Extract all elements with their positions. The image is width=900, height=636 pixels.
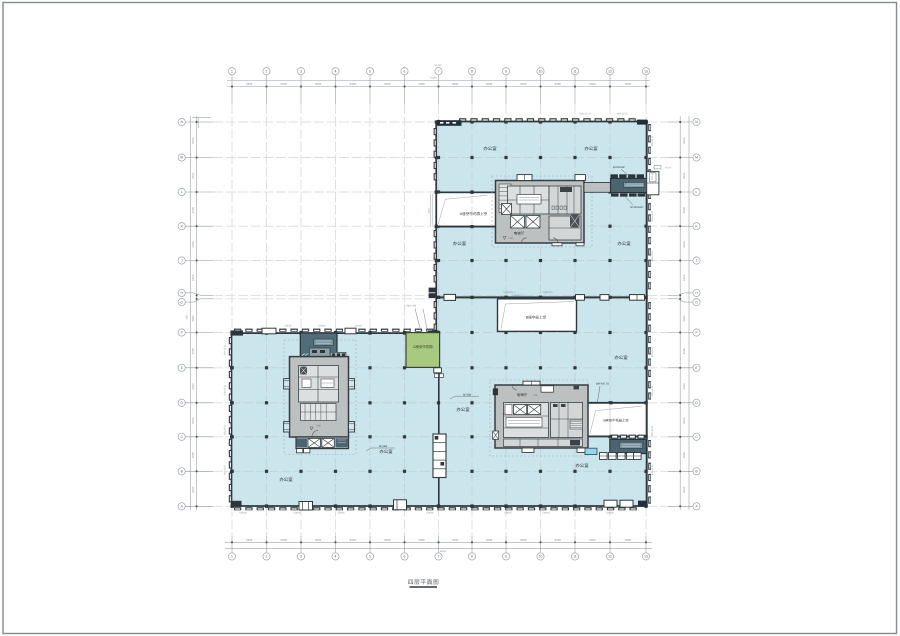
svg-text:K(J)#J: K(J)#J (430, 77, 437, 80)
svg-text:6600: 6600 (315, 538, 322, 542)
svg-text:B(7)B8: B(7)B8 (463, 393, 472, 396)
svg-text:6600: 6600 (682, 383, 686, 390)
svg-text:6600: 6600 (384, 82, 391, 86)
svg-text:6600: 6600 (246, 82, 253, 86)
svg-text:4: 4 (335, 555, 337, 559)
svg-text:12: 12 (608, 69, 612, 73)
svg-text:J: J (181, 259, 183, 263)
svg-text:办公室: 办公室 (614, 355, 628, 360)
svg-text:81900: 81900 (440, 550, 447, 553)
svg-text:办公室: 办公室 (575, 463, 589, 468)
svg-text:办公室: 办公室 (379, 449, 393, 454)
svg-text:6600: 6600 (625, 538, 632, 542)
svg-text:C8026: C8026 (426, 512, 434, 515)
svg-text:6600: 6600 (625, 82, 632, 86)
svg-text:6600: 6600 (682, 315, 686, 322)
svg-text:M2a (2-2): M2a (2-2) (651, 347, 654, 358)
svg-text:M2a (2-2): M2a (2-2) (224, 465, 227, 476)
svg-text:4500: 4500 (427, 208, 430, 214)
svg-text:K1J42: K1J42 (434, 64, 442, 67)
svg-text:C8026: C8026 (318, 324, 326, 327)
svg-text:M2a (2-2): M2a (2-2) (651, 251, 654, 262)
svg-text:G: G (695, 300, 698, 304)
svg-text:6600: 6600 (682, 348, 686, 355)
svg-text:C8026: C8026 (293, 512, 301, 515)
svg-text:B座中庭上空: B座中庭上空 (526, 315, 547, 320)
svg-text:办公室: 办公室 (617, 241, 631, 246)
svg-text:6600: 6600 (191, 486, 195, 493)
svg-text:L: L (181, 190, 183, 194)
svg-text:8: 8 (471, 69, 473, 73)
svg-text:6600: 6600 (281, 82, 288, 86)
svg-text:6600: 6600 (486, 538, 493, 542)
svg-text:4: 4 (335, 69, 337, 73)
svg-text:1: 1 (231, 69, 233, 73)
svg-text:3: 3 (300, 69, 302, 73)
svg-text:L: L (696, 190, 698, 194)
svg-text:6600: 6600 (682, 207, 686, 214)
svg-text:6600: 6600 (191, 207, 195, 214)
svg-text:M2a (2-2): M2a (2-2) (651, 465, 654, 476)
svg-text:6600: 6600 (682, 241, 686, 248)
svg-text:C8026: C8026 (284, 324, 292, 327)
svg-text:6600: 6600 (191, 417, 195, 424)
svg-text:C8026: C8026 (337, 512, 345, 515)
svg-text:6600: 6600 (191, 315, 195, 322)
svg-text:C座空中花园: C座空中花园 (413, 345, 433, 349)
svg-text:5: 5 (369, 69, 371, 73)
svg-text:6600: 6600 (520, 82, 527, 86)
svg-text:1-4B/1-6M: 1-4B/1-6M (404, 305, 416, 308)
svg-text:12: 12 (608, 555, 612, 559)
svg-text:7: 7 (438, 555, 440, 559)
svg-text:6600: 6600 (281, 538, 288, 542)
svg-text:5: 5 (369, 555, 371, 559)
svg-text:6600: 6600 (191, 383, 195, 390)
svg-text:6600: 6600 (682, 486, 686, 493)
svg-text:1.6M2(2-1): 1.6M2(2-1) (512, 294, 524, 297)
svg-text:6600: 6600 (682, 172, 686, 179)
svg-text:G: G (180, 300, 183, 304)
svg-text:A座空中花园上空: A座空中花园上空 (460, 211, 488, 216)
svg-text:6600: 6600 (452, 538, 459, 542)
svg-text:6600: 6600 (191, 348, 195, 355)
svg-text:6600: 6600 (315, 82, 322, 86)
svg-text:7425: 7425 (186, 314, 189, 320)
svg-text:办公室: 办公室 (279, 477, 293, 482)
svg-text:电梯厅: 电梯厅 (517, 392, 528, 397)
svg-text:B座空中花园上空: B座空中花园上空 (603, 418, 629, 422)
svg-text:C8026: C8026 (542, 512, 550, 515)
svg-text:11: 11 (573, 69, 577, 73)
svg-text:6600: 6600 (350, 538, 357, 542)
svg-text:1: 1 (231, 555, 233, 559)
svg-text:6600: 6600 (191, 137, 195, 144)
svg-text:办公室: 办公室 (584, 146, 598, 151)
svg-text:M2a (2-2): M2a (2-2) (651, 386, 654, 397)
svg-text:办公室: 办公室 (456, 407, 470, 412)
svg-text:7.20: 7.20 (508, 237, 513, 240)
svg-text:10: 10 (539, 555, 543, 559)
svg-text:6600: 6600 (350, 82, 357, 86)
svg-text:6600: 6600 (520, 538, 527, 542)
svg-text:6600: 6600 (384, 538, 391, 542)
svg-text:6600: 6600 (682, 452, 686, 459)
svg-text:6600: 6600 (589, 82, 596, 86)
svg-text:办公室: 办公室 (483, 146, 497, 151)
svg-text:10: 10 (539, 69, 543, 73)
svg-text:6600: 6600 (589, 538, 596, 542)
svg-text:M2a (2-2): M2a (2-2) (224, 345, 227, 356)
svg-text:6: 6 (404, 69, 406, 73)
svg-text:电梯厅: 电梯厅 (514, 231, 525, 236)
svg-text:9: 9 (505, 555, 507, 559)
svg-text:6: 6 (404, 555, 406, 559)
svg-text:M2a (2-2): M2a (2-2) (651, 211, 654, 222)
svg-text:6600: 6600 (418, 538, 425, 542)
svg-text:C8026: C8026 (239, 512, 247, 515)
svg-text:6600: 6600 (191, 172, 195, 179)
svg-text:办公室: 办公室 (453, 241, 467, 246)
svg-text:M: M (180, 156, 183, 160)
svg-text:M2a (2-2): M2a (2-2) (580, 113, 591, 116)
svg-text:6600: 6600 (486, 82, 493, 86)
svg-text:J: J (696, 259, 698, 263)
svg-text:3: 3 (300, 555, 302, 559)
svg-text:F: F (695, 331, 697, 335)
svg-text:2: 2 (266, 555, 268, 559)
svg-text:6600: 6600 (452, 82, 459, 86)
svg-text:C8026: C8026 (606, 512, 614, 515)
svg-text:7.20: 7.20 (316, 425, 321, 428)
svg-text:C8026: C8026 (354, 324, 362, 327)
svg-text:B(7)B8: B(7)B8 (379, 445, 388, 448)
svg-text:11: 11 (573, 555, 577, 559)
svg-text:13: 13 (644, 555, 648, 559)
svg-text:13: 13 (644, 69, 648, 73)
svg-text:6600: 6600 (246, 538, 253, 542)
svg-text:M2a (2-2): M2a (2-2) (224, 385, 227, 396)
svg-text:M2a (2-2): M2a (2-2) (651, 170, 654, 181)
svg-text:8: 8 (471, 555, 473, 559)
svg-text:6600: 6600 (418, 82, 425, 86)
svg-text:6600: 6600 (555, 538, 562, 542)
svg-text:6600: 6600 (682, 417, 686, 424)
svg-text:C8026: C8026 (504, 512, 512, 515)
svg-text:6600: 6600 (191, 241, 195, 248)
svg-text:7: 7 (438, 69, 440, 73)
svg-text:M: M (695, 156, 698, 160)
svg-text:6600: 6600 (191, 452, 195, 459)
svg-text:M2a (2-2): M2a (2-2) (651, 136, 654, 147)
svg-text:F: F (181, 331, 183, 335)
svg-text:6600: 6600 (682, 137, 686, 144)
svg-text:6600: 6600 (191, 274, 195, 281)
svg-text:9: 9 (505, 69, 507, 73)
svg-text:2#1-#: 2#1-# (665, 167, 672, 170)
svg-text:BYDD2AP: BYDD2AP (613, 166, 625, 169)
svg-text:M2a (2-2): M2a (2-2) (617, 113, 628, 116)
svg-text:C@M2(2-): C@M2(2-) (542, 291, 553, 294)
svg-text:M2a (2-2): M2a (2-2) (651, 426, 654, 437)
svg-text:2: 2 (266, 69, 268, 73)
svg-text:四层平面图: 四层平面图 (408, 579, 440, 586)
svg-text:6600: 6600 (682, 274, 686, 281)
svg-text:B9F685.7B: B9F685.7B (596, 383, 609, 386)
svg-text:M2a (2-2): M2a (2-2) (224, 425, 227, 436)
svg-text:BYDD32AY: BYDD32AY (630, 206, 644, 209)
svg-text:6600: 6600 (555, 82, 562, 86)
